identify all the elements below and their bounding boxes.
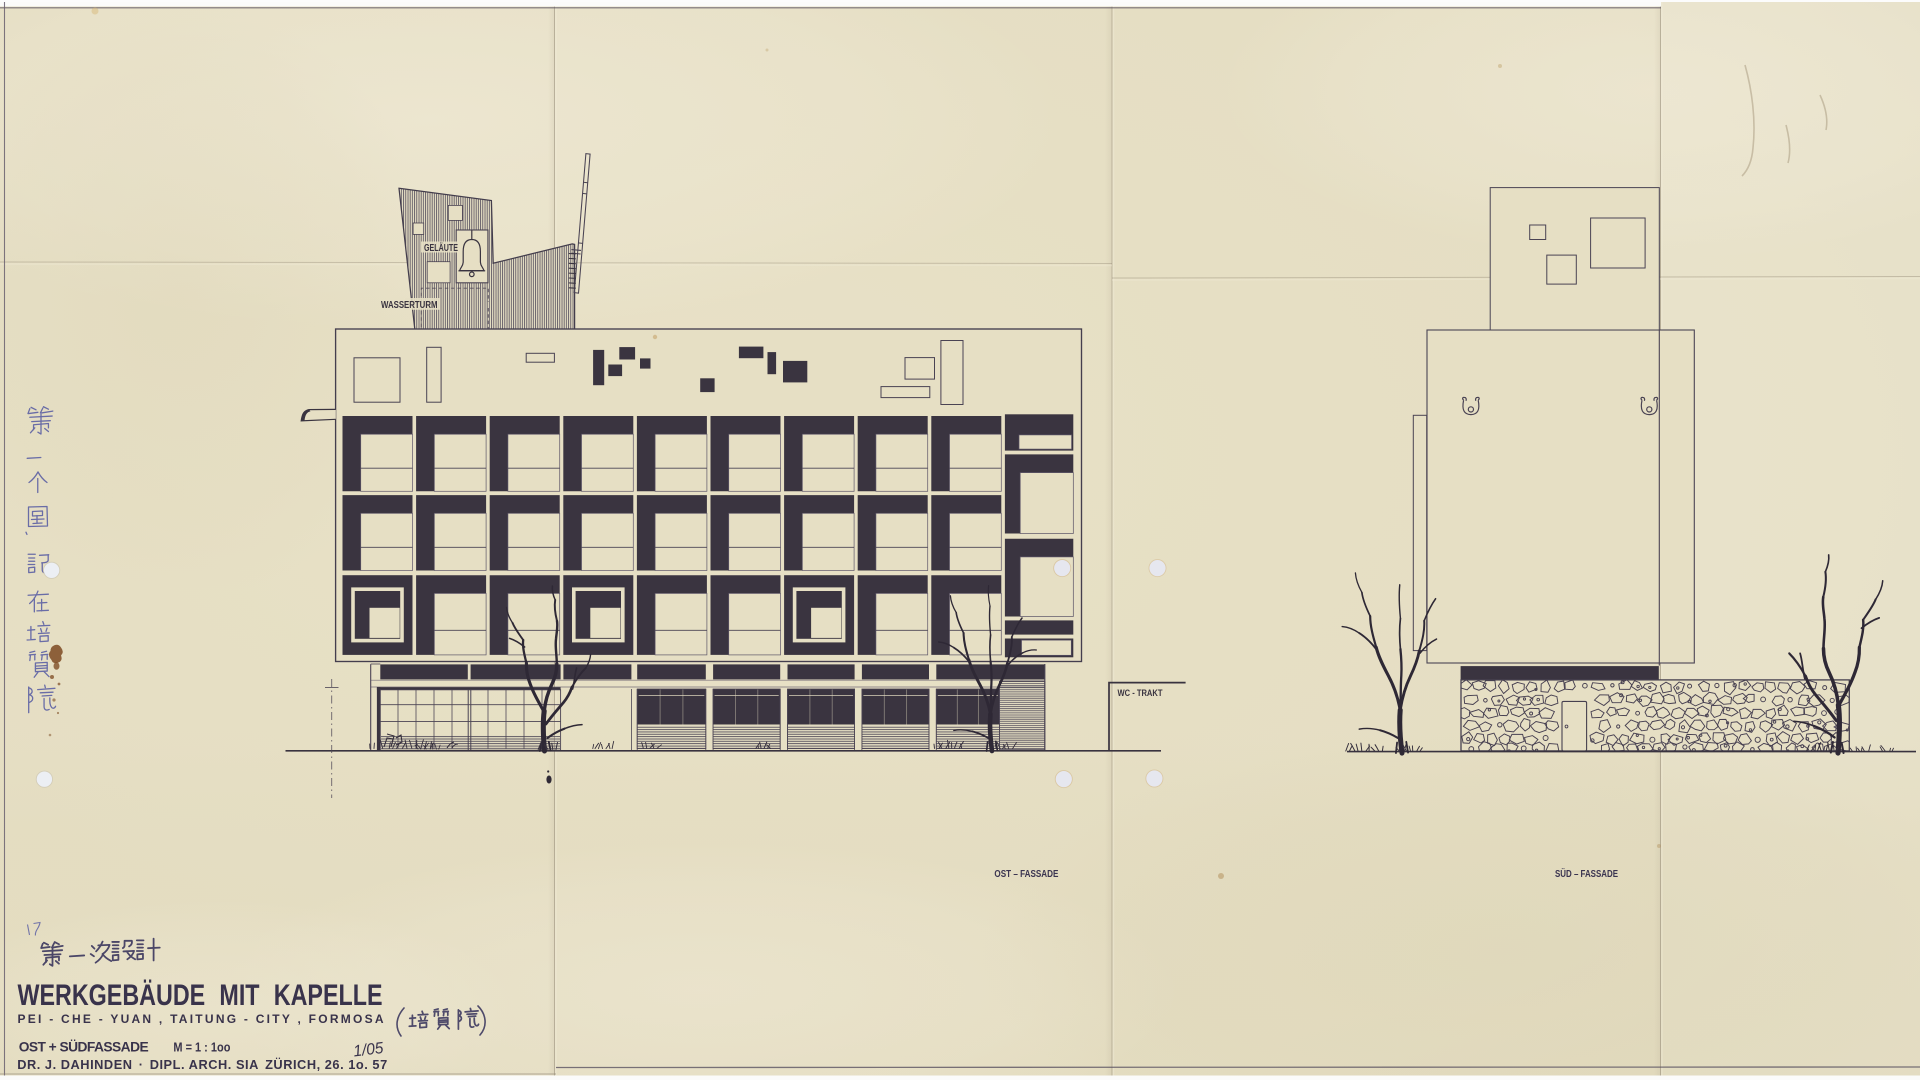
svg-text:PEI - CHE - YUAN , TAITUNG - C: PEI - CHE - YUAN , TAITUNG - CITY , FORM… — [18, 1012, 384, 1026]
svg-text:WERKGEBÄUDE MIT KAPELLE: WERKGEBÄUDE MIT KAPELLE — [18, 979, 383, 1012]
svg-text:WASSERTURM: WASSERTURM — [381, 299, 438, 311]
svg-text:GELÄUTE: GELÄUTE — [424, 241, 458, 254]
svg-text:DR. J. DAHINDEN · DIPL. ARCH: DR. J. DAHINDEN · DIPL. ARCH. SIA ZÜRICH… — [17, 1057, 387, 1072]
svg-text:WC - TRAKT: WC - TRAKT — [1118, 688, 1163, 698]
svg-text:M = 1 : 1oo: M = 1 : 1oo — [173, 1040, 230, 1055]
svg-text:OST + SÜDFASSADE: OST + SÜDFASSADE — [19, 1039, 149, 1055]
svg-text:OST – FASSADE: OST – FASSADE — [994, 869, 1058, 880]
svg-text:SÜD – FASSADE: SÜD – FASSADE — [1555, 869, 1618, 880]
